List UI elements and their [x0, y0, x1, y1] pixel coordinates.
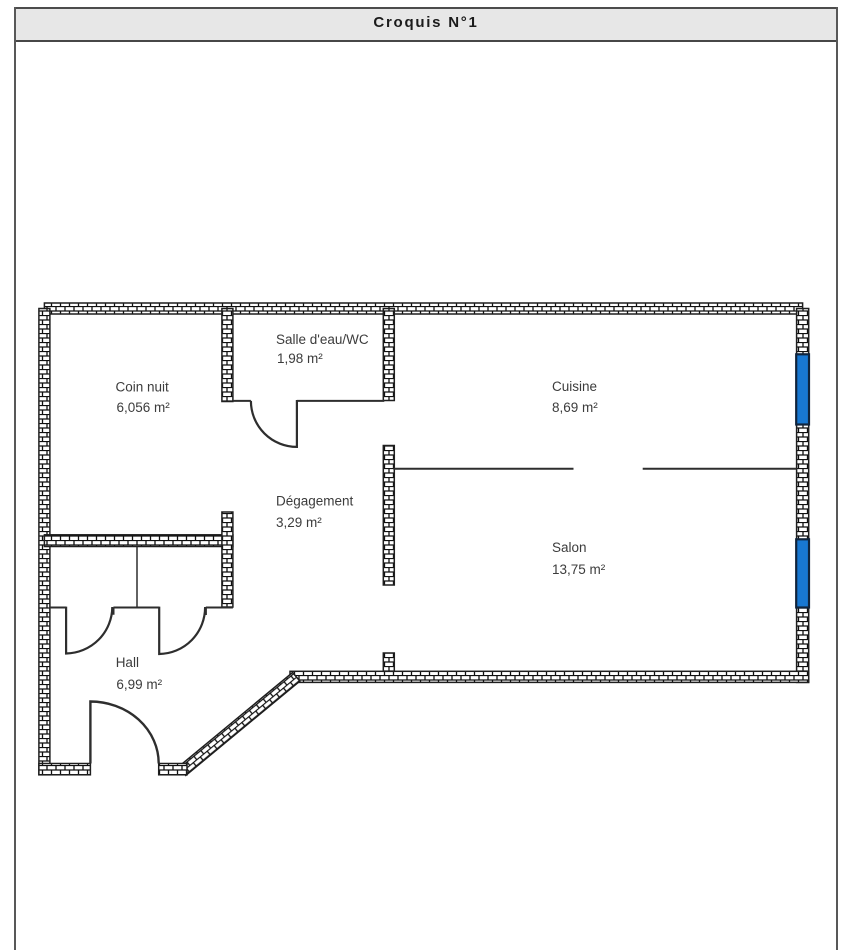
svg-text:13,75 m²: 13,75 m²	[552, 562, 606, 577]
svg-text:8,69 m²: 8,69 m²	[552, 400, 598, 415]
svg-text:Coin nuit: Coin nuit	[116, 380, 170, 395]
svg-text:Hall: Hall	[116, 655, 139, 670]
svg-text:6,99 m²: 6,99 m²	[116, 677, 162, 692]
svg-text:Dégagement: Dégagement	[276, 494, 354, 509]
svg-text:Salon: Salon	[552, 540, 587, 555]
svg-text:3,29 m²: 3,29 m²	[276, 515, 322, 530]
svg-text:Salle d'eau/WC: Salle d'eau/WC	[276, 332, 369, 347]
svg-text:1,98 m²: 1,98 m²	[277, 351, 323, 366]
svg-text:Cuisine: Cuisine	[552, 379, 597, 394]
svg-text:6,056 m²: 6,056 m²	[117, 400, 171, 415]
